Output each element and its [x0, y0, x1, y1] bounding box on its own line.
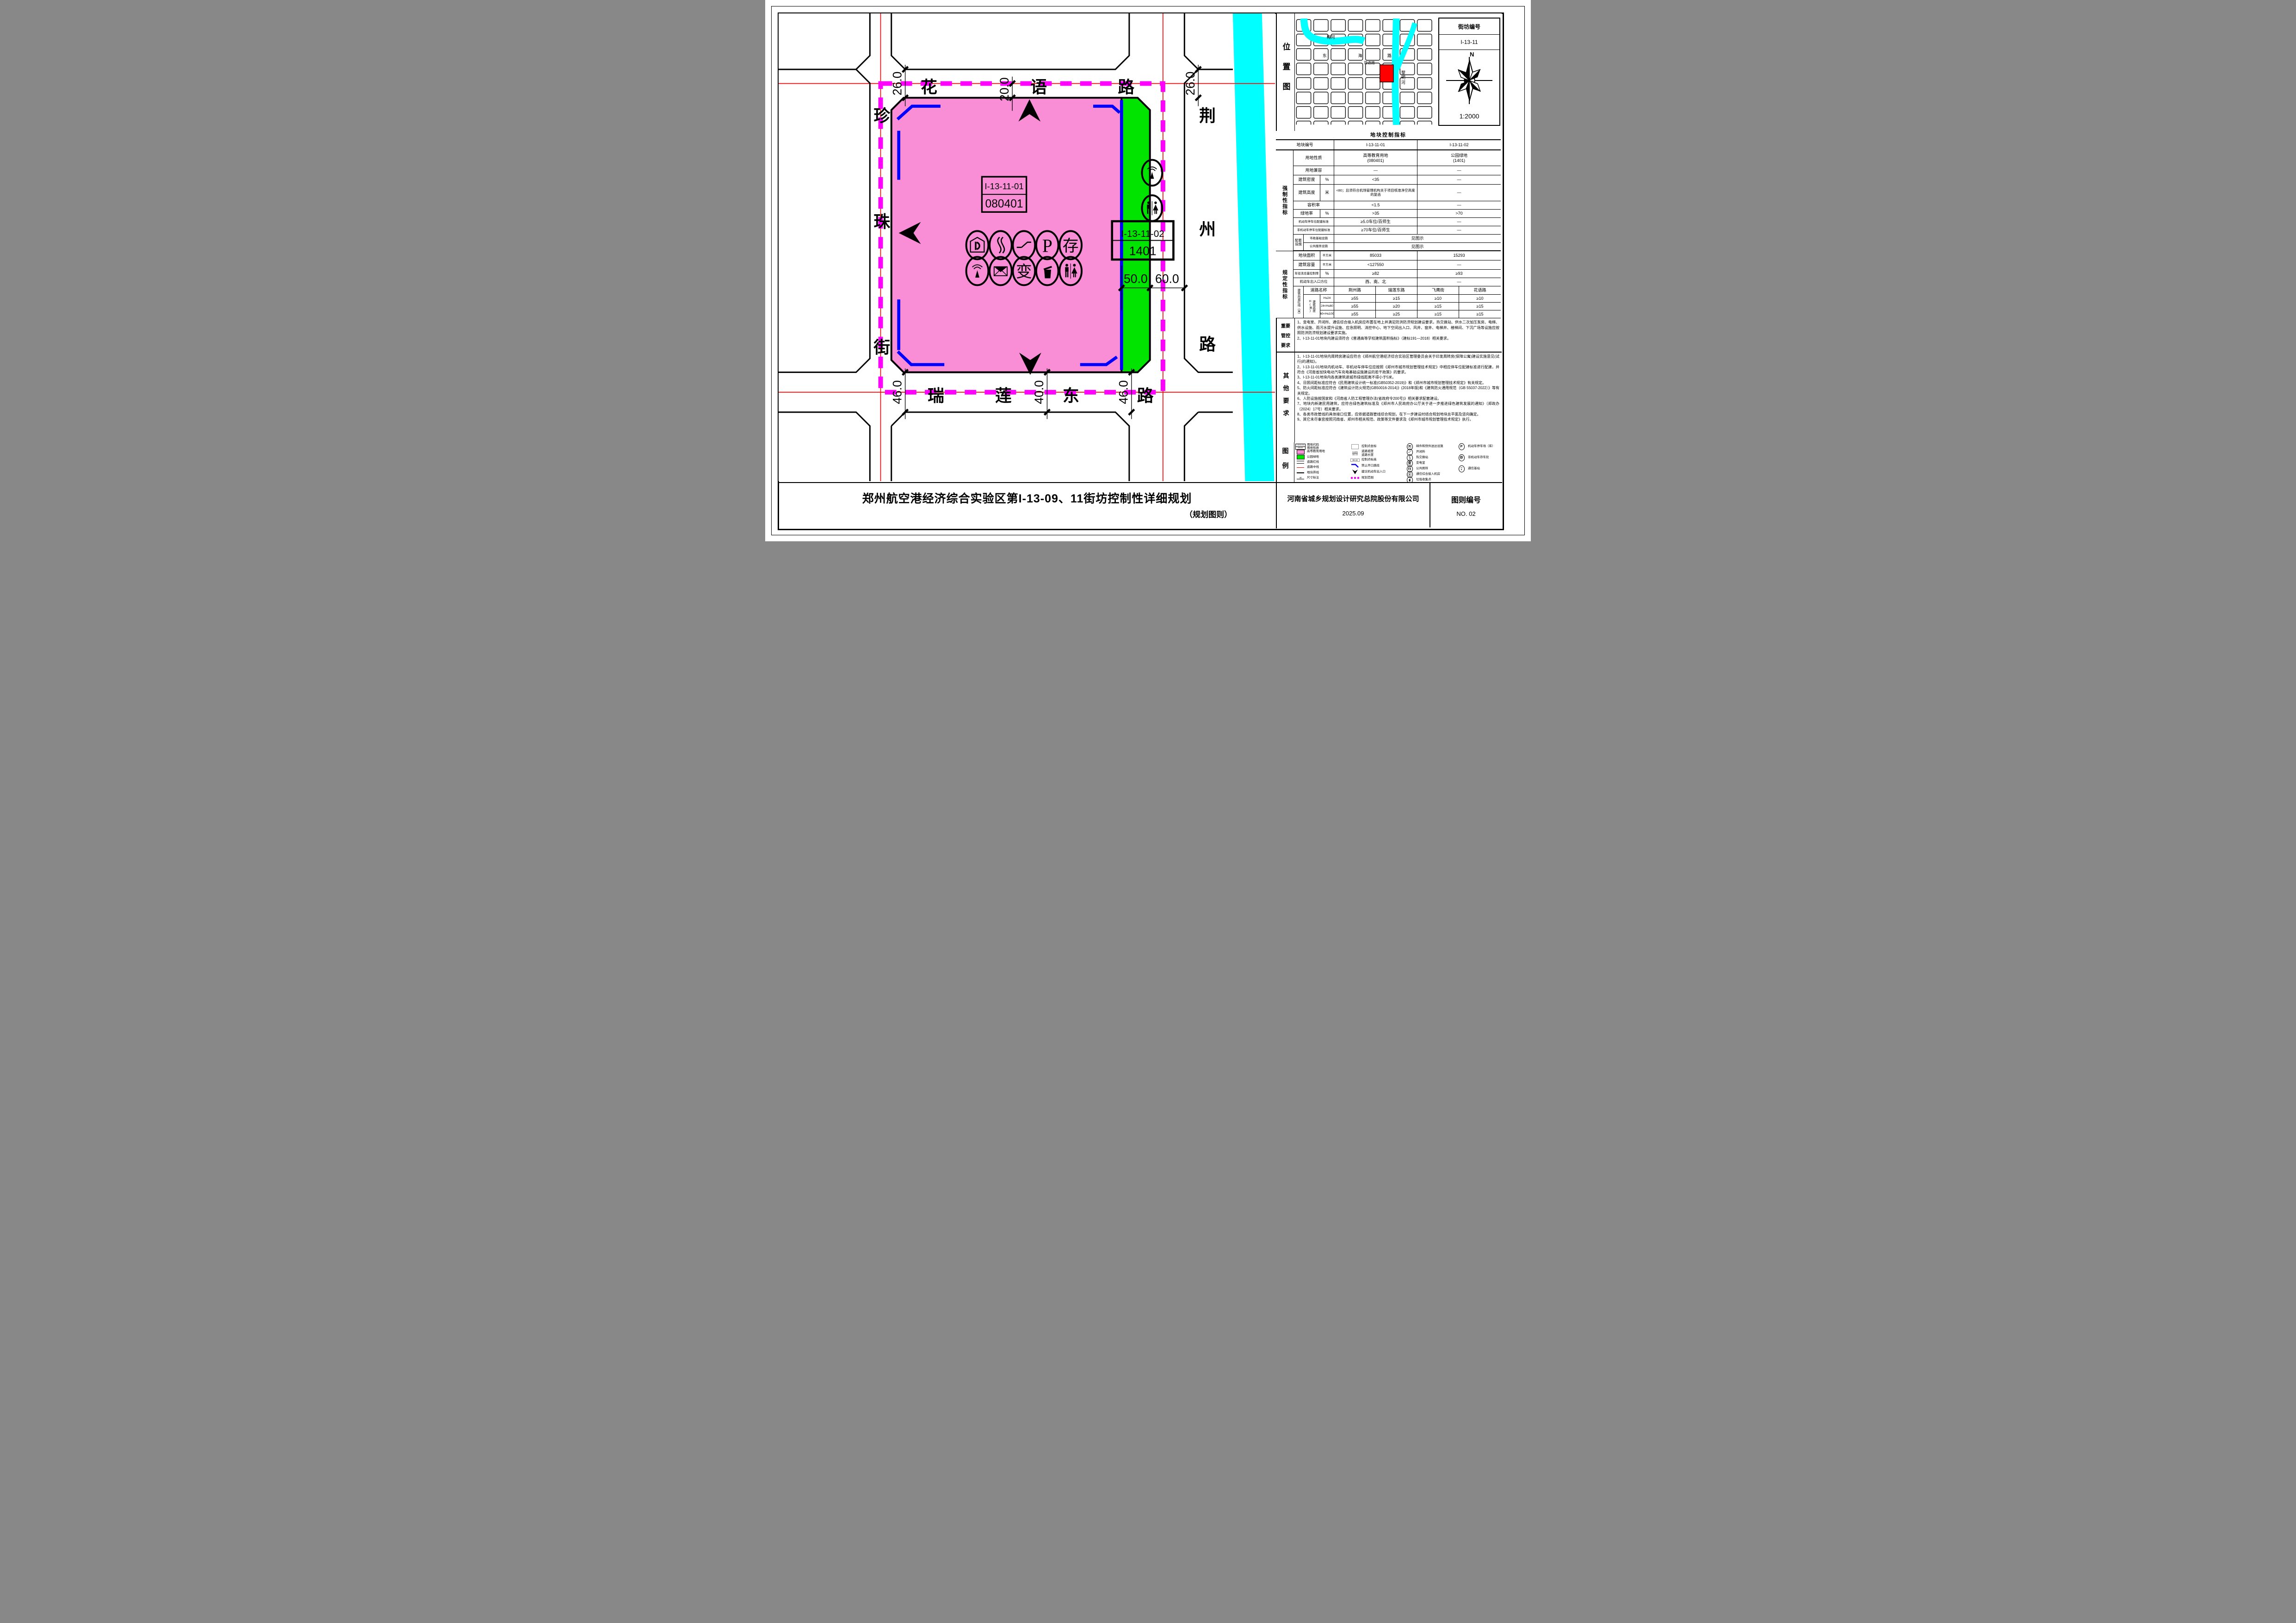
table-title: 地块控制指标 — [1276, 131, 1501, 140]
plan-date: 2025.09 — [1343, 510, 1364, 517]
support-v1: 见图示 — [1334, 235, 1501, 243]
setback-v-2-3: ≥15 — [1459, 310, 1501, 318]
no-open-symbol — [1351, 464, 1359, 468]
setback-v-1-3: ≥15 — [1459, 303, 1501, 310]
road-name-char: 珠 — [873, 212, 891, 231]
legend-item: P 机动车停车场（库） — [1456, 444, 1501, 449]
density-v2: — — [1417, 175, 1501, 185]
svg-text:黎: 黎 — [1401, 70, 1405, 75]
setback-v-2-0: ≥55 — [1334, 310, 1376, 318]
key-control-item: 1、变电室、开闭所、通信综合接入机房应布置在地上并满足防洪防涝规划建设要求。热交… — [1297, 320, 1499, 336]
height-label: 建筑高度 — [1293, 185, 1320, 201]
svg-text:海: 海 — [1358, 53, 1362, 58]
svg-text:梅河: 梅河 — [1327, 34, 1335, 39]
setback-range-1: 24<H≤60 — [1320, 303, 1334, 310]
legend-item: 规划范围 — [1350, 475, 1405, 481]
runoff-label: 年径流总量控制率 — [1293, 270, 1320, 278]
capacity-unit: 平方米 — [1320, 260, 1334, 270]
location-label-text: 位置图 — [1280, 43, 1292, 102]
road-name-char: 路 — [1118, 78, 1134, 96]
access-v2: — — [1417, 278, 1501, 286]
support-sub2: 公共服务设施 — [1304, 243, 1334, 251]
setback-v-2-1: ≥25 — [1376, 310, 1417, 318]
legend-label: 图例 — [1277, 442, 1294, 482]
setback-height-header: 建筑高度H(米) — [1304, 295, 1320, 318]
dim-label: 60.0 — [1155, 272, 1179, 285]
svg-text:明: 明 — [1401, 75, 1405, 80]
parcel-education-pink — [891, 98, 1122, 372]
group-regulatory: 规定性指标 — [1276, 251, 1293, 318]
svg-text:路: 路 — [1387, 53, 1392, 58]
access-v1: 西、南、北 — [1334, 278, 1417, 286]
parcel-code: I-13-11-02 — [1121, 229, 1164, 239]
legend-item: 道路中线 — [1295, 465, 1350, 470]
use-v2-line2: (1401) — [1453, 158, 1465, 163]
garbage-icon — [1407, 477, 1413, 483]
setback-road-0: 荆州路 — [1334, 286, 1376, 295]
legend-col4: P 机动车停车场（库） 存 非机动车存车处 通信基站 — [1456, 444, 1501, 481]
dimension-symbol: 40 — [1295, 477, 1306, 480]
bike-storage-icon: 存 — [1063, 237, 1079, 255]
sheet-subtitle: （规划图则） — [1185, 508, 1232, 520]
area-v1: 85033 — [1334, 251, 1417, 260]
legend-item: 存 非机动车存车处 — [1456, 455, 1501, 460]
road-name-char: 路 — [1199, 335, 1216, 354]
key-control-label-line: 重要 — [1281, 322, 1290, 329]
block-number-title: 街坊编号 — [1458, 23, 1480, 31]
far-label: 容积率 — [1293, 201, 1334, 210]
other-req-label: 其他要求 — [1277, 353, 1295, 442]
company-name: 河南省城乡规划设计研究总院股份有限公司 — [1287, 494, 1419, 503]
density-v1: <35 — [1334, 175, 1417, 185]
green-label: 绿地率 — [1293, 210, 1320, 218]
legend-item: 建议机动车出入口 — [1350, 469, 1405, 475]
other-req-item: 1、I-13-11-01地块内周转房建设应符合《郑州航空港经济综合实验区管理委员… — [1297, 354, 1499, 365]
other-req-label-text: 其他要求 — [1281, 372, 1290, 422]
legend-label-text: 图例 — [1281, 447, 1290, 477]
dim-label: 46.0 — [1117, 380, 1131, 404]
legend-item: 垃圾收集点 — [1405, 477, 1456, 483]
footer-title-cell: 郑州航空港经济综合实验区第I-13-09、11街坊控制性详细规划 （规划图则） — [778, 483, 1276, 527]
sheet-no-label: 图则编号 — [1451, 494, 1481, 505]
other-requirements-section: 其他要求 1、I-13-11-01地块内周转房建设应符合《郑州航空港经济综合实验… — [1277, 353, 1502, 443]
key-control-text: 1、变电室、开闭所、通信综合接入机房应布置在地上并满足防洪防涝规划建设要求。热交… — [1295, 318, 1502, 352]
legend-section: 图例 I-13-11-01080401 用地代码用地性质 高等教育用地 公园绿地 — [1277, 442, 1502, 482]
road-name-char: 花 — [921, 78, 937, 96]
bike-label: 非机动车停车位配建标准 — [1293, 226, 1334, 235]
compat-label: 用地兼容 — [1293, 166, 1334, 175]
location-section-label: 位置图 — [1277, 13, 1295, 131]
block-number-value-row: I-13-11 — [1439, 35, 1499, 50]
footer-sheet-no-cell: 图则编号 NO. 02 — [1430, 483, 1502, 527]
green-v2: >70 — [1417, 210, 1501, 218]
access-label: 机动车出入口方位 — [1293, 278, 1334, 286]
setback-v-1-0: ≥55 — [1334, 303, 1376, 310]
parcel-use-code: 080401 — [985, 198, 1023, 210]
sheet-no-value: NO. 02 — [1456, 510, 1475, 517]
area-unit: 平方米 — [1320, 251, 1334, 260]
park-land-swatch — [1297, 455, 1305, 459]
legend-item: 道路红线 — [1295, 460, 1350, 465]
dim-label: 40.0 — [1032, 380, 1046, 404]
other-req-text: 1、I-13-11-01地块内周转房建设应符合《郑州航空港经济综合实验区管理委员… — [1295, 353, 1502, 442]
scale-text: 1:2000 — [1460, 112, 1479, 120]
setback-v-1-1: ≥20 — [1376, 303, 1417, 310]
dim-label: 26.0 — [890, 72, 904, 96]
control-indicator-table: 地块控制指标 地块编号 I-13-11-01 I-13-11-02 强制性指标 … — [1276, 131, 1502, 319]
area-label: 地块面积 — [1293, 251, 1320, 260]
setback-v-2-2: ≥15 — [1417, 310, 1459, 318]
use-v1: 高等教育用地 (080401) — [1334, 150, 1417, 166]
legend-item: 99.18 控制点标高 — [1350, 458, 1405, 463]
legend-col3: 邮件和快件送达设施 开闭所 热交换站 变 变电室 公共厕所 — [1405, 444, 1456, 481]
location-map: 东 海 路 梅河 花语路 黎 明 河 — [1295, 19, 1434, 125]
legend-col2: 控制点坐标 0.10%360.00 道路坡度道路长度 99.18 控制点标高 — [1350, 444, 1405, 481]
parking-v2: — — [1417, 218, 1501, 226]
use-v1-line2: (080401) — [1367, 158, 1384, 163]
use-code-symbol: I-13-11-01080401 — [1295, 444, 1306, 450]
use-v2: 公园绿地 (1401) — [1417, 150, 1501, 166]
road-centerline-symbol — [1297, 467, 1304, 468]
use-label: 用地性质 — [1293, 150, 1334, 166]
compat-v2: — — [1417, 166, 1501, 175]
runoff-v1: ≥82 — [1334, 270, 1417, 278]
slope-symbol: 0.10%360.00 — [1350, 451, 1360, 456]
other-req-item: 4、日照间距标准应符合《民用建筑设计统一标准(GB50352-2019)》和《郑… — [1297, 380, 1499, 385]
setback-road-header: 道路名称 — [1304, 286, 1334, 295]
spot-elevation-symbol: 99.18 — [1350, 458, 1360, 462]
legend-item: 通信基站 — [1456, 466, 1501, 471]
setback-v-0-2: ≥10 — [1417, 295, 1459, 303]
compass-area: N — [1439, 50, 1499, 109]
key-control-label-line: 要求 — [1281, 341, 1290, 348]
scale-row: 1:2000 — [1439, 109, 1499, 123]
other-req-item: 5、防火间距标准应符合《建筑设计防火规范(GB50016-2014)》(2018… — [1297, 385, 1499, 396]
road-name-char: 路 — [1137, 387, 1154, 405]
setback-v-0-3: ≥10 — [1459, 295, 1501, 303]
green-unit: % — [1320, 210, 1334, 218]
density-unit: % — [1320, 175, 1334, 185]
road-name-char: 莲 — [995, 387, 1012, 405]
svg-text:花语路: 花语路 — [1364, 61, 1375, 65]
plot-boundary-symbol — [1297, 472, 1304, 473]
other-req-item: 2、I-13-11-01地块内机动车、非机动车停车位应按照《郑州市城市规划管理技… — [1297, 365, 1499, 375]
parking-icon: P — [1459, 443, 1465, 450]
far-v1: <1.5 — [1334, 201, 1417, 210]
parcel-label-main: I-13-11-01 080401 — [982, 177, 1026, 212]
bike-v2: — — [1417, 226, 1501, 235]
legend-col1: I-13-11-01080401 用地代码用地性质 高等教育用地 公园绿地 道路… — [1295, 444, 1350, 481]
support-v2: 见图示 — [1334, 243, 1501, 251]
road-redline-symbol — [1297, 461, 1304, 464]
support-sub1: 市政基础设施 — [1304, 235, 1334, 243]
legend-item: 地块界线 — [1295, 470, 1350, 475]
key-control-section: 重要 管控 要求 1、变电室、开闭所、通信综合接入机房应布置在地上并满足防洪防涝… — [1277, 318, 1502, 353]
setback-road-1: 瑞莲东路 — [1376, 286, 1417, 295]
setback-road-2: 飞鹰街 — [1417, 286, 1459, 295]
key-control-item: 2、I-13-11-01地块内建设须符合《普通高等学校建筑面积指标》（建标191… — [1297, 336, 1499, 341]
setback-range-0: H≤24 — [1320, 295, 1334, 303]
runoff-v2: ≥93 — [1417, 270, 1501, 278]
footer-company-cell: 河南省城乡规划设计研究总院股份有限公司 2025.09 — [1277, 483, 1430, 527]
use-v2-line1: 公园绿地 — [1451, 153, 1467, 158]
legend-item: 公园绿地 — [1295, 454, 1350, 459]
substation-icon: 变 — [1016, 263, 1032, 281]
capacity-label: 建筑容量 — [1293, 260, 1320, 270]
capacity-v2: — — [1417, 260, 1501, 270]
block-number-box: 街坊编号 I-13-11 N 1:2000 — [1438, 18, 1500, 126]
other-req-item: 3、I-13-11-01地块内各类建筑退城市绿线距离不得小于5米。 — [1297, 375, 1499, 380]
planning-range-symbol — [1351, 477, 1359, 479]
parking-label: 机动车停车位配建标准 — [1293, 218, 1334, 226]
setback-v-0-0: ≥55 — [1334, 295, 1376, 303]
legend-item: 40 尺寸标注 — [1295, 476, 1350, 481]
far-v2: — — [1417, 201, 1501, 210]
road-name-char: 语 — [1030, 78, 1047, 96]
dim-label: 20.0 — [997, 77, 1011, 101]
svg-text:东: 东 — [1323, 53, 1327, 58]
block-number-value: I-13-11 — [1461, 39, 1478, 45]
plan-sheet: 26.0 20.0 26.0 46.0 40.0 46.0 50.0 60.0 … — [765, 0, 1531, 541]
parking-icon: P — [1042, 235, 1052, 256]
road-name-char: 州 — [1199, 220, 1216, 239]
key-control-label: 重要 管控 要求 — [1277, 318, 1295, 352]
legend-item: I-13-11-01080401 用地代码用地性质 — [1295, 444, 1350, 449]
height-v1: <80；且须符合机场管理机构关于项目核准净空高度的复函 — [1334, 185, 1417, 201]
key-control-label-line: 管控 — [1281, 332, 1290, 339]
plot-no-v1: I-13-11-01 — [1334, 140, 1417, 150]
plot-no-label: 地块编号 — [1276, 140, 1334, 150]
block-number-title-row: 街坊编号 — [1439, 19, 1499, 35]
capacity-v1: <127550 — [1334, 260, 1417, 270]
use-v1-line1: 高等教育用地 — [1363, 153, 1388, 158]
legend-grid: I-13-11-01080401 用地代码用地性质 高等教育用地 公园绿地 道路… — [1294, 442, 1502, 482]
green-v1: >35 — [1334, 210, 1417, 218]
parcel-code: I-13-11-01 — [984, 181, 1023, 191]
setback-range-2: 60<H≤100 — [1320, 310, 1334, 318]
group-mandatory: 强制性指标 — [1276, 150, 1293, 251]
road-name-char: 荆 — [1199, 107, 1216, 125]
site-highlight — [1380, 65, 1393, 82]
bike-storage-icon: 存 — [1459, 454, 1465, 461]
dim-label: 50.0 — [1124, 272, 1148, 285]
setback-label: 建筑后退红线（米） — [1293, 286, 1304, 318]
base-station-icon — [1459, 465, 1465, 472]
road-name-char: 东 — [1063, 387, 1079, 405]
dim-label: 26.0 — [1183, 72, 1197, 96]
legend-item: 高等教育用地 — [1295, 449, 1350, 454]
road-name-char: 街 — [873, 338, 890, 357]
parking-v1: ≥5.0车位/百师生 — [1334, 218, 1417, 226]
height-unit: 米 — [1320, 185, 1334, 201]
road-name-char: 珍 — [873, 107, 891, 125]
plan-map: 26.0 20.0 26.0 46.0 40.0 46.0 50.0 60.0 … — [779, 13, 1275, 481]
education-land-swatch — [1297, 450, 1305, 454]
plot-no-v2: I-13-11-02 — [1417, 140, 1501, 150]
setback-v-0-1: ≥15 — [1376, 295, 1417, 303]
support-label: 配套设施 — [1293, 235, 1304, 251]
sheet-title: 郑州航空港经济综合实验区第I-13-09、11街坊控制性详细规划 — [778, 489, 1276, 506]
other-req-item: 9、其它未尽事宜按照河南省、郑州市相关规范、政策等文件要求及《郑州市城市规划管理… — [1297, 417, 1499, 422]
svg-text:河: 河 — [1401, 80, 1405, 85]
access-arrow-symbol — [1352, 470, 1358, 474]
parcel-use-code: 1401 — [1129, 244, 1157, 258]
runoff-unit: % — [1320, 270, 1334, 278]
area-v2: 15293 — [1417, 251, 1501, 260]
compass-rose-icon — [1442, 55, 1497, 106]
legend-item: 禁止开口路段 — [1350, 463, 1405, 469]
other-req-item: 7、地块内新建民用建筑，应符合绿色建筑标准及《郑州市人民政府办公厅关于进一步推进… — [1297, 401, 1499, 412]
density-label: 建筑密度 — [1293, 175, 1320, 185]
compat-v1: — — [1334, 166, 1417, 175]
legend-item: 0.10%360.00 道路坡度道路长度 — [1350, 450, 1405, 457]
setback-road-3: 花语路 — [1459, 286, 1501, 295]
bike-v1: ≥70车位/百师生 — [1334, 226, 1417, 235]
control-point-symbol — [1351, 444, 1359, 449]
other-req-item: 6、人防设施按国家和《河南省人防工程管理办法(省政府令200号)》相关要求配套建… — [1297, 396, 1499, 401]
road-name-char: 瑞 — [928, 387, 944, 405]
river-liminghe — [1395, 19, 1397, 125]
setback-v-1-2: ≥15 — [1417, 303, 1459, 310]
dim-label: 46.0 — [890, 380, 904, 404]
other-req-item: 8、各类市政管线的具体接口位置，应依据道路管线综合规划，在下一步建设时结合规划地… — [1297, 412, 1499, 417]
height-v2: — — [1417, 185, 1501, 201]
legend-item: 控制点坐标 — [1350, 444, 1405, 449]
